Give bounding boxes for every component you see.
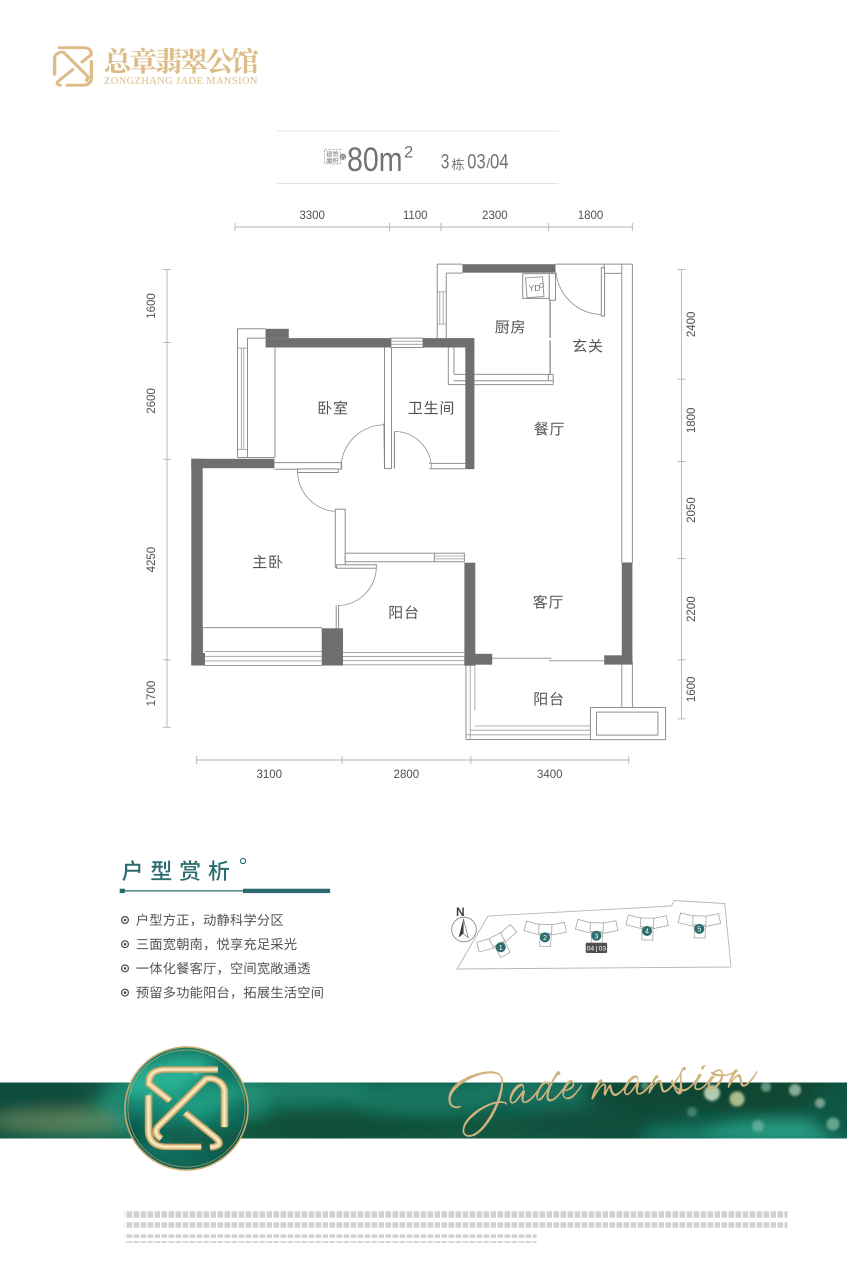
svg-text:1800: 1800 — [686, 408, 698, 434]
svg-text:04: 04 — [490, 151, 509, 174]
svg-text:1600: 1600 — [146, 293, 158, 319]
svg-text:ZONGZHANG JADE MANSION: ZONGZHANG JADE MANSION — [104, 76, 258, 87]
svg-text:1100: 1100 — [403, 210, 428, 222]
svg-text:3400: 3400 — [537, 769, 563, 781]
svg-text:2050: 2050 — [686, 497, 698, 523]
svg-text:2: 2 — [404, 144, 413, 162]
svg-text:2300: 2300 — [482, 210, 508, 222]
svg-text:1800: 1800 — [578, 210, 604, 222]
svg-text:2400: 2400 — [686, 312, 698, 338]
svg-text:1600: 1600 — [686, 677, 698, 703]
svg-text:5: 5 — [697, 925, 701, 934]
svg-text:03: 03 — [467, 151, 485, 174]
svg-text:2600: 2600 — [146, 388, 158, 414]
svg-text:3: 3 — [594, 931, 598, 940]
svg-text:1700: 1700 — [146, 681, 158, 707]
svg-text:3100: 3100 — [257, 769, 283, 781]
svg-text:1: 1 — [499, 943, 503, 952]
svg-text:2200: 2200 — [686, 596, 698, 622]
svg-text:80m: 80m — [347, 141, 403, 179]
svg-text:3: 3 — [441, 151, 450, 174]
svg-text:2: 2 — [543, 933, 547, 942]
svg-text:3300: 3300 — [299, 210, 325, 222]
svg-text:04 | 03: 04 | 03 — [587, 945, 607, 952]
svg-text:YD: YD — [529, 283, 541, 293]
svg-text:2800: 2800 — [394, 769, 420, 781]
svg-text:4: 4 — [645, 927, 649, 936]
svg-text:4250: 4250 — [146, 547, 158, 573]
